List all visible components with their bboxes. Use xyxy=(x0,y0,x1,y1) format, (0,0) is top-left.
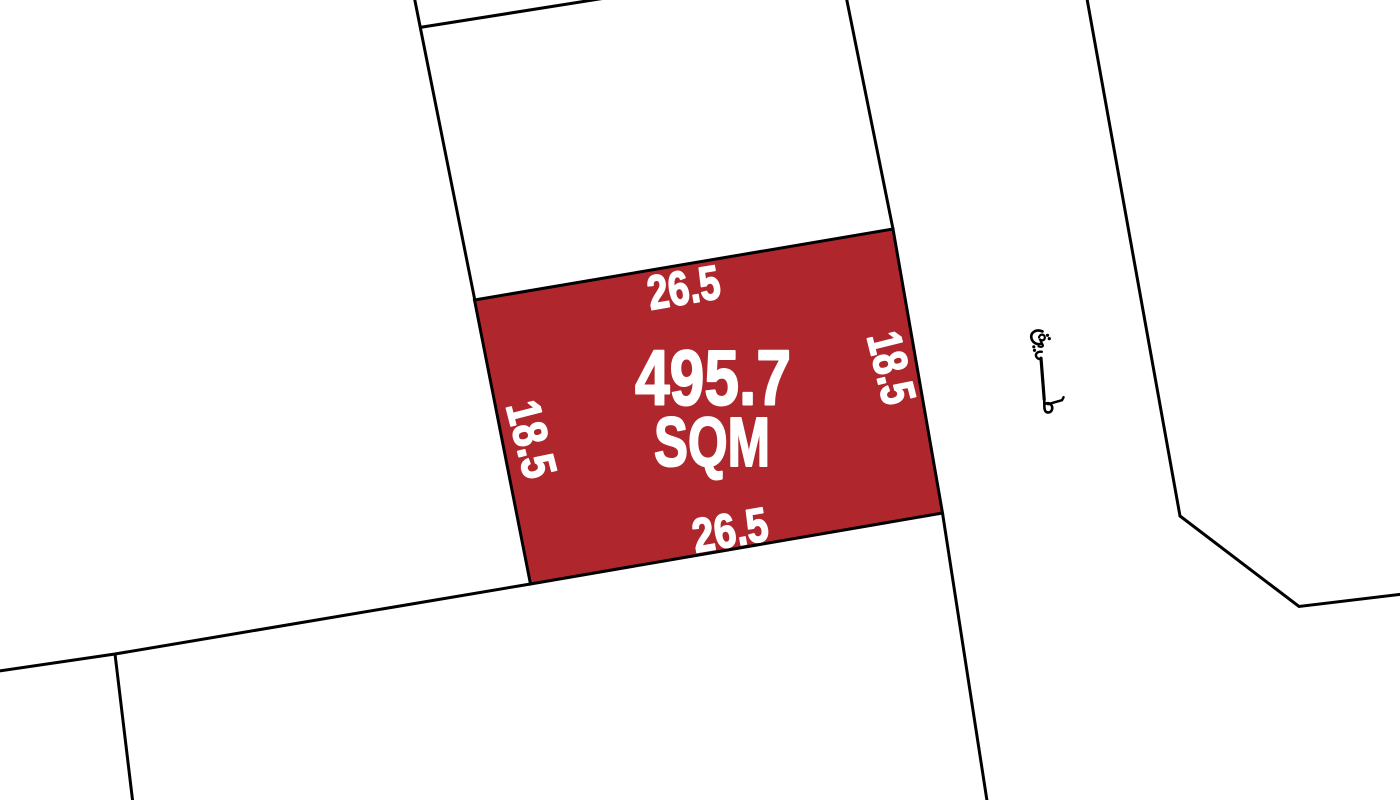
svg-text:SQM: SQM xyxy=(654,403,770,481)
